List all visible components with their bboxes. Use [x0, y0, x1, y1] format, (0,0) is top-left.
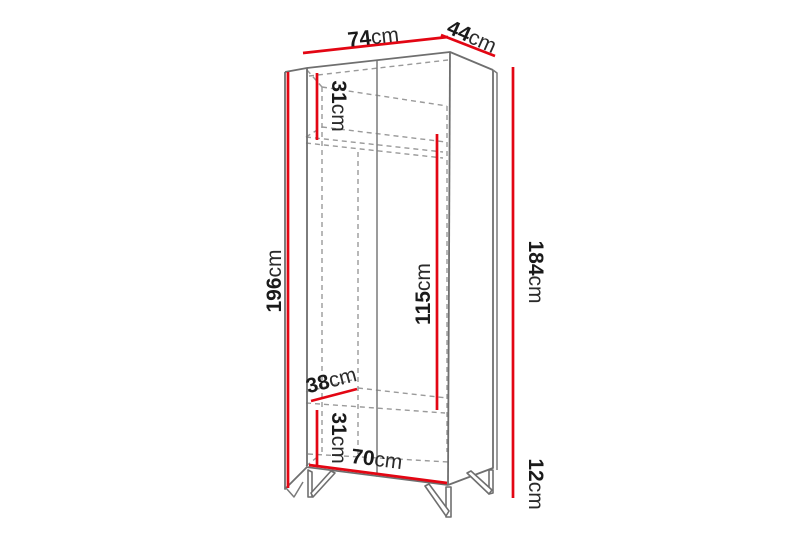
dim-label-total-height: 196cm [263, 249, 286, 312]
dim-label-top-width: 74cm [347, 23, 401, 51]
right-panel-outer-edge [448, 70, 493, 485]
dim-label-upper-section-height: 31cm [327, 80, 350, 131]
dim-label-shelf-depth: 38cm [304, 363, 359, 398]
dim-label-interior-height: 115cm [412, 263, 435, 325]
dimension-labels: 74cm 44cm 31cm 196cm 115cm 184cm 38cm 31… [263, 16, 547, 510]
top-edges [307, 52, 493, 70]
dim-label-body-height: 184cm [524, 240, 547, 303]
dim-label-lower-section-height: 31cm [327, 412, 350, 463]
wardrobe-dimension-diagram: 74cm 44cm 31cm 196cm 115cm 184cm 38cm 31… [0, 0, 800, 533]
dimension-lines [288, 35, 513, 498]
dim-label-top-depth: 44cm [444, 16, 500, 58]
front-left-leg-brace [311, 471, 335, 497]
dim-label-leg-height: 12cm [524, 458, 547, 509]
dim-label-interior-width: 70cm [350, 445, 404, 474]
front-right-edge [448, 52, 450, 484]
product-dimension-image: 74cm 44cm 31cm 196cm 115cm 184cm 38cm 31… [0, 0, 800, 533]
